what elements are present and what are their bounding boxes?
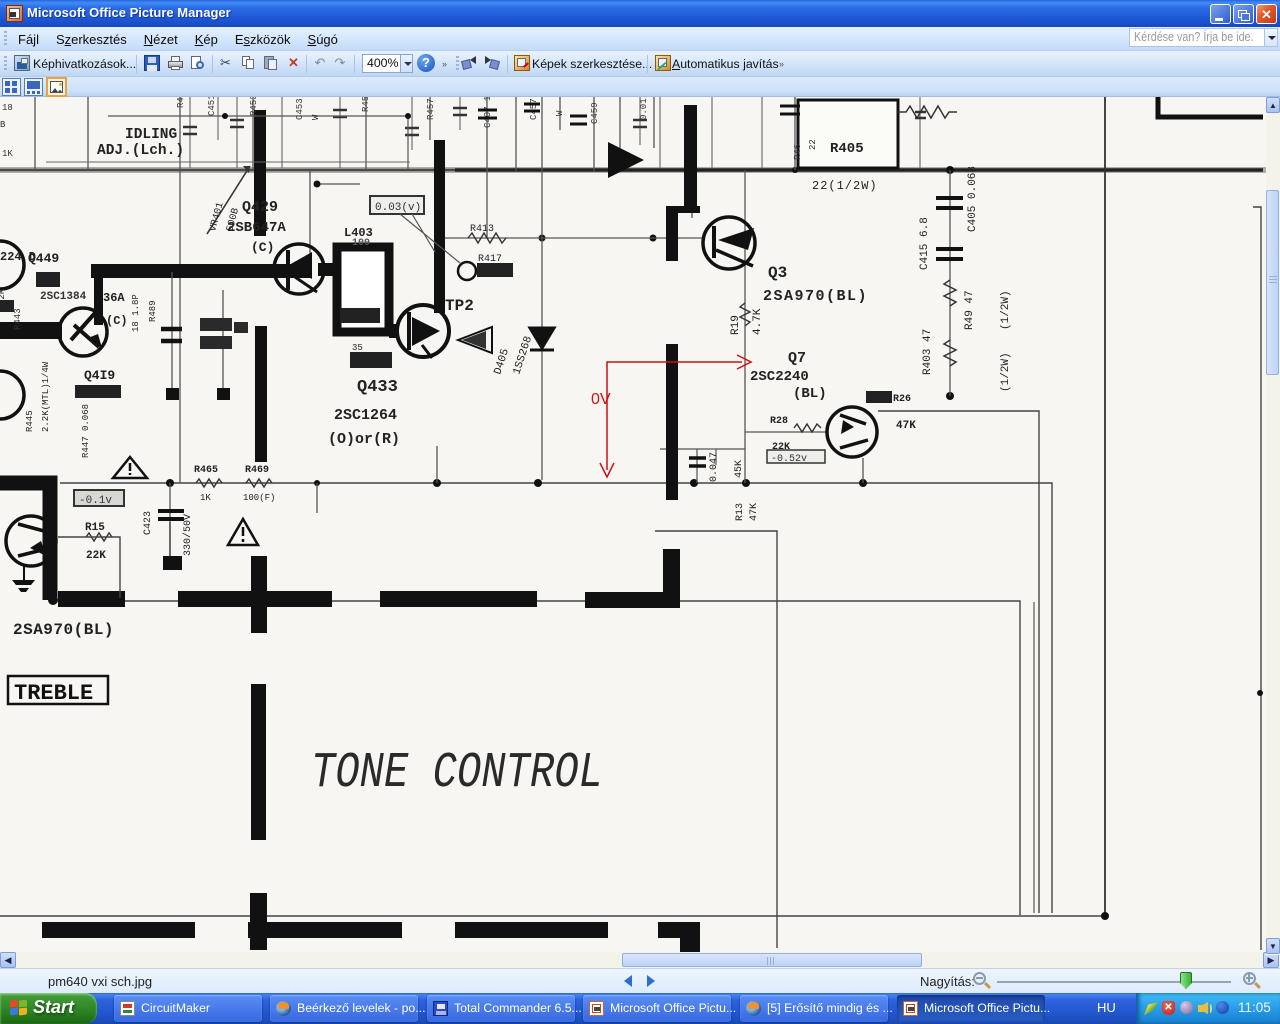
svg-text:R26: R26 (893, 394, 911, 405)
svg-text:R19: R19 (730, 315, 742, 335)
svg-text:1K: 1K (2, 149, 13, 159)
svg-text:330/50V: 330/50V (182, 514, 194, 556)
svg-text:R15: R15 (85, 522, 105, 534)
svg-text:IDLING: IDLING (125, 127, 177, 143)
svg-text:VR401: VR401 (208, 201, 226, 233)
svg-text:Q3: Q3 (768, 264, 787, 282)
svg-text:22: 22 (808, 139, 818, 150)
svg-text:R455: R455 (361, 97, 371, 112)
svg-text:R413: R413 (470, 224, 494, 235)
svg-text:Q429: Q429 (242, 199, 278, 216)
svg-text:47K: 47K (749, 503, 760, 521)
svg-text:Q4I9: Q4I9 (84, 368, 115, 383)
svg-text:4.7K: 4.7K (752, 308, 764, 335)
svg-text:2.2K(MTL)1/4W: 2.2K(MTL)1/4W (41, 361, 51, 432)
svg-text:1SS268: 1SS268 (511, 335, 535, 376)
svg-text:R28: R28 (770, 416, 788, 427)
svg-text:C457: C457 (529, 98, 539, 120)
svg-text:22(1/2W): 22(1/2W) (812, 179, 878, 193)
svg-text:C451: C451 (207, 97, 217, 116)
svg-text:0.047: 0.047 (709, 452, 720, 482)
svg-text:D405: D405 (492, 347, 512, 376)
svg-text:47K: 47K (896, 420, 916, 432)
svg-text:R457 82: R457 82 (426, 97, 436, 120)
svg-text:C405 0.068: C405 0.068 (967, 166, 979, 232)
svg-text:18: 18 (2, 103, 13, 113)
svg-text:-0.52v: -0.52v (771, 454, 807, 465)
svg-text:2SA970(BL): 2SA970(BL) (13, 621, 114, 639)
svg-text:0.03(v): 0.03(v) (375, 202, 421, 214)
svg-text:2SC1384: 2SC1384 (40, 291, 87, 303)
svg-text:C453 10/16: C453 10/16 (295, 97, 305, 120)
svg-text:100: 100 (352, 238, 370, 249)
svg-text:2SA970(BL): 2SA970(BL) (763, 288, 868, 305)
svg-text:(BL): (BL) (793, 386, 827, 402)
svg-text:R13: R13 (735, 503, 746, 521)
svg-text:TP2: TP2 (445, 297, 474, 315)
svg-text:(1/2W): (1/2W) (1000, 290, 1012, 330)
svg-text:R451: R451 (176, 97, 186, 108)
svg-text:R417: R417 (478, 254, 502, 265)
svg-text:R403 47: R403 47 (922, 329, 934, 375)
svg-text:TREBLE: TREBLE (14, 681, 93, 706)
svg-text:36A: 36A (103, 291, 125, 305)
svg-text:2SC1264: 2SC1264 (334, 407, 397, 424)
svg-text:(O)or(R): (O)or(R) (328, 431, 400, 448)
svg-text:(C): (C) (251, 240, 274, 255)
svg-text:224 D: 224 D (0, 250, 36, 264)
svg-text:W: W (311, 114, 321, 120)
svg-text:R49 47: R49 47 (964, 290, 976, 330)
svg-text:R453: R453 (249, 97, 259, 116)
svg-text:Q433: Q433 (357, 378, 398, 397)
svg-text:R489: R489 (148, 300, 158, 322)
svg-text:(C): (C) (106, 314, 128, 328)
svg-text:0V: 0V (591, 391, 611, 408)
svg-text:ADJ.(Lch.): ADJ.(Lch.) (97, 143, 184, 159)
svg-text:22K: 22K (86, 550, 106, 562)
svg-text:100(F): 100(F) (243, 493, 275, 503)
svg-text:2SC2240: 2SC2240 (750, 369, 809, 385)
svg-text:35: 35 (352, 343, 363, 353)
svg-text:R46: R46 (793, 144, 803, 160)
svg-text:R447 0.068: R447 0.068 (81, 404, 91, 458)
svg-text:R445: R445 (25, 410, 35, 432)
svg-text:TONE CONTROL: TONE CONTROL (311, 745, 603, 802)
svg-text:0.01: 0.01 (639, 98, 649, 120)
svg-text:B: B (0, 120, 6, 130)
svg-text:18 1.8P: 18 1.8P (131, 294, 141, 332)
svg-text:C407 10/16: C407 10/16 (483, 97, 493, 128)
svg-text:(1/2W): (1/2W) (1000, 352, 1012, 392)
svg-text:Q7: Q7 (788, 350, 806, 367)
svg-text:R465: R465 (194, 465, 218, 476)
svg-text:C459 0.01: C459 0.01 (590, 97, 600, 124)
svg-text:R443: R443 (13, 308, 23, 330)
svg-text:C423: C423 (143, 511, 154, 535)
svg-text:-0.1v: -0.1v (79, 495, 112, 507)
svg-text:R469: R469 (245, 465, 269, 476)
svg-text:R405: R405 (830, 141, 864, 157)
svg-text:45K: 45K (734, 460, 745, 478)
svg-text:1K: 1K (200, 493, 211, 503)
svg-text:C415 6.8: C415 6.8 (919, 217, 931, 270)
svg-text:W: W (555, 110, 565, 116)
